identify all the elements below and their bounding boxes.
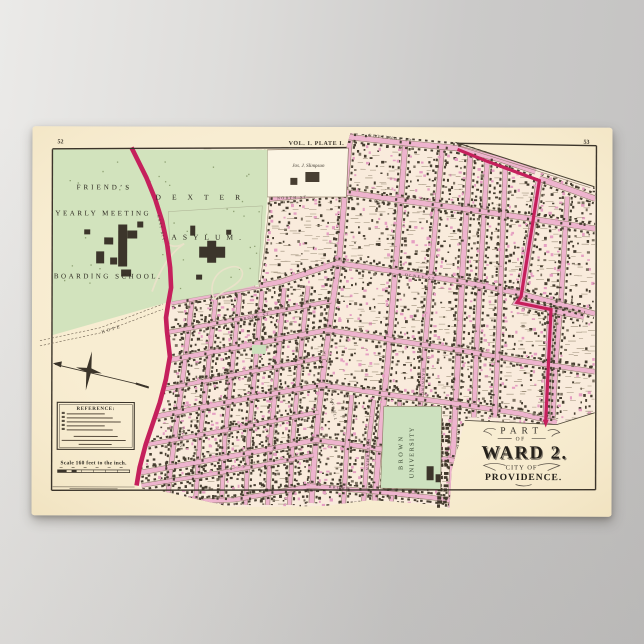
svg-text:NORTH ST: NORTH ST: [277, 194, 308, 200]
svg-text:BROWN: BROWN: [398, 434, 405, 470]
svg-text:Scale 160 feet to the inch.: Scale 160 feet to the inch.: [61, 460, 128, 466]
svg-text:VOL. I. PLATE I.: VOL. I. PLATE I.: [289, 141, 345, 147]
svg-text:BOARDING SCHOOL.: BOARDING SCHOOL.: [54, 272, 162, 280]
svg-text:UNIVERSITY: UNIVERSITY: [409, 426, 416, 478]
svg-text:DEXTER: DEXTER: [156, 193, 252, 202]
svg-text:CITY OF: CITY OF: [506, 464, 538, 471]
svg-text:FRIEND’S: FRIEND’S: [77, 183, 133, 191]
svg-text:PROVIDENCE.: PROVIDENCE.: [485, 473, 562, 483]
svg-text:YEARLY MEETING: YEARLY MEETING: [55, 209, 151, 217]
svg-text:53: 53: [583, 140, 589, 146]
svg-text:Jos. J. Slimpson: Jos. J. Slimpson: [292, 164, 325, 169]
svg-text:PART: PART: [500, 426, 543, 436]
svg-text:52: 52: [57, 139, 63, 145]
svg-text:WARD 2.: WARD 2.: [482, 443, 568, 463]
svg-text:OF: OF: [516, 437, 526, 443]
svg-text:ASYLUM.: ASYLUM.: [171, 233, 247, 242]
svg-text:REFERENCE:: REFERENCE:: [77, 407, 116, 412]
